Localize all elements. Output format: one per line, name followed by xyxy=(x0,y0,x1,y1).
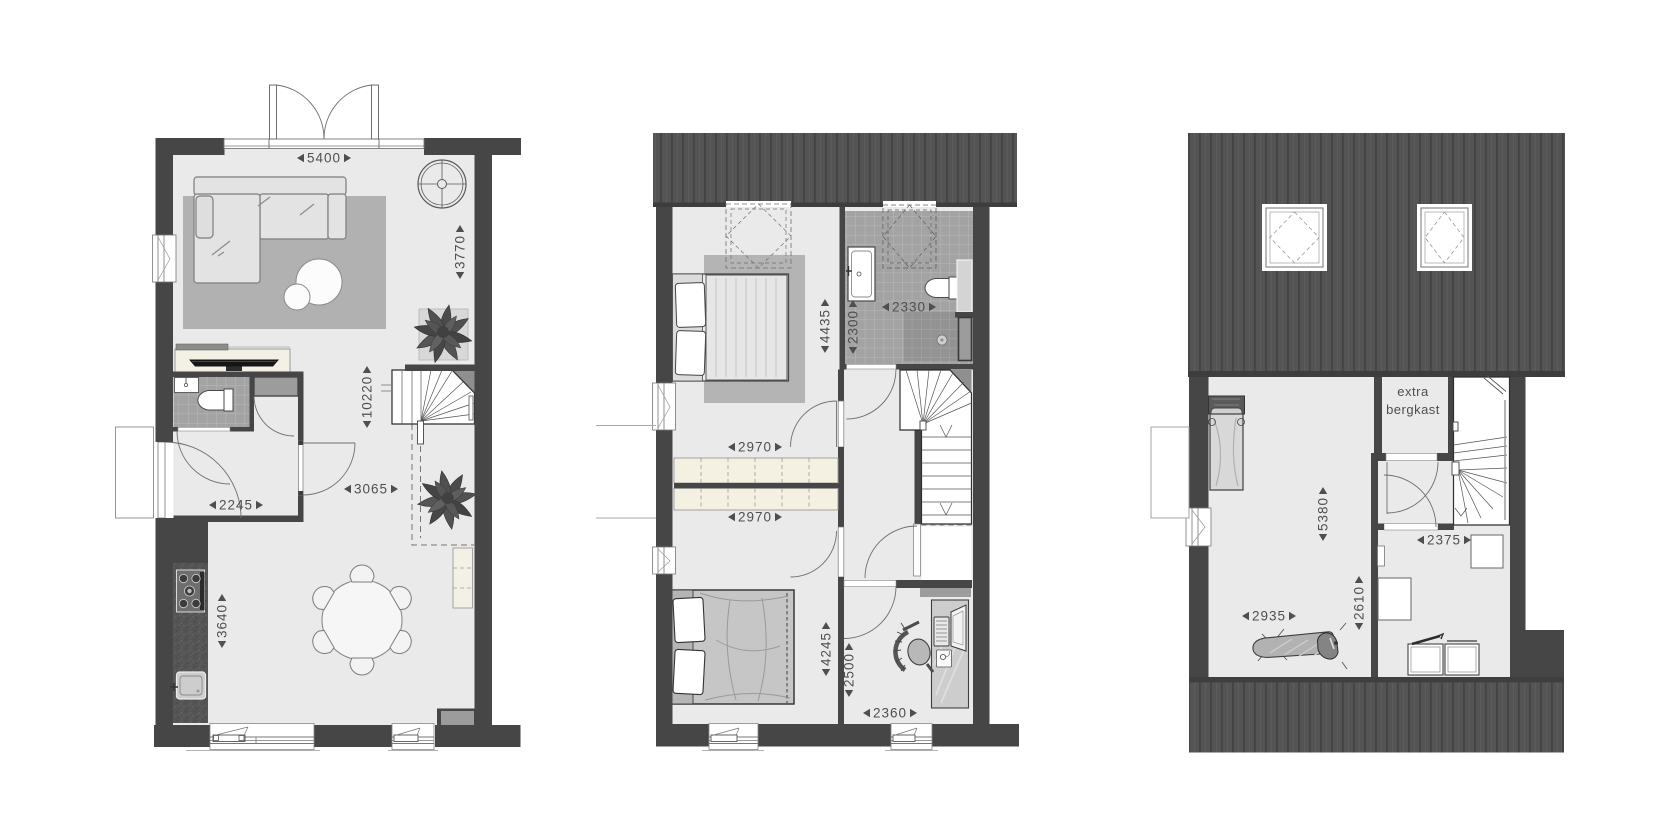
svg-text:3770: 3770 xyxy=(453,235,468,269)
svg-text:2500: 2500 xyxy=(842,653,857,687)
svg-text:extra: extra xyxy=(1397,384,1429,399)
svg-text:5380: 5380 xyxy=(1316,497,1331,531)
svg-text:2610: 2610 xyxy=(1352,586,1367,620)
svg-text:10220: 10220 xyxy=(360,376,375,419)
svg-text:3640: 3640 xyxy=(215,604,230,638)
svg-text:2970: 2970 xyxy=(738,510,772,525)
svg-text:2300: 2300 xyxy=(846,310,861,344)
svg-text:5400: 5400 xyxy=(307,151,341,166)
svg-text:2970: 2970 xyxy=(738,440,772,455)
svg-text:4245: 4245 xyxy=(819,632,834,666)
svg-text:4435: 4435 xyxy=(818,309,833,343)
svg-text:2245: 2245 xyxy=(219,498,253,513)
svg-text:2935: 2935 xyxy=(1252,609,1286,624)
svg-text:2375: 2375 xyxy=(1427,533,1461,548)
svg-text:bergkast: bergkast xyxy=(1386,402,1440,417)
svg-text:2330: 2330 xyxy=(892,300,926,315)
svg-text:3065: 3065 xyxy=(354,482,388,497)
svg-text:2360: 2360 xyxy=(873,706,907,721)
